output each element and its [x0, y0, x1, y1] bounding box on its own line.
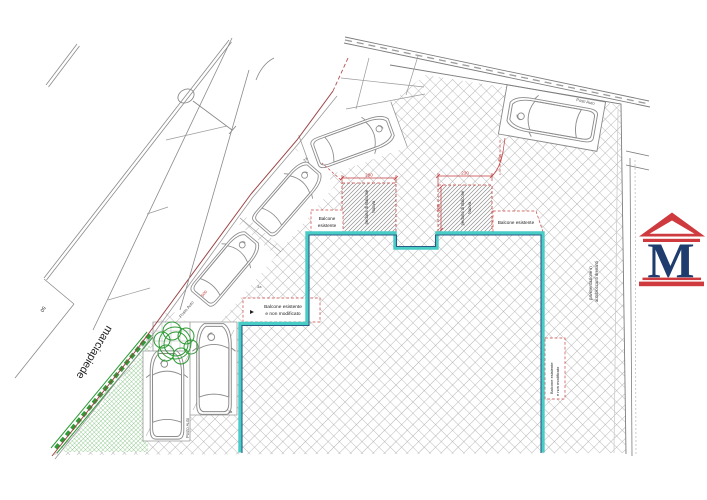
- svg-text:pedana di Balcone: pedana di Balcone: [364, 189, 369, 224]
- svg-text:3a: 3a: [257, 284, 262, 289]
- svg-text:Balcone esistente: Balcone esistente: [498, 220, 535, 225]
- svg-text:pedana di Balcone: pedana di Balcone: [460, 190, 465, 225]
- svg-text:e non modificato: e non modificato: [555, 366, 560, 396]
- svg-text:Balcone: Balcone: [319, 216, 336, 221]
- svg-text:Balcone esistente: Balcone esistente: [264, 304, 302, 310]
- svg-text:Balcone esistente: Balcone esistente: [549, 362, 554, 394]
- svg-text:e non modificato: e non modificato: [265, 311, 301, 317]
- svg-text:Nuova: Nuova: [467, 201, 472, 214]
- svg-text:290: 290: [365, 173, 373, 178]
- svg-text:160: 160: [436, 204, 441, 212]
- svg-text:Posto Auto: Posto Auto: [185, 417, 190, 438]
- svg-text:pavimentazione in: pavimentazione in: [588, 266, 593, 300]
- svg-text:esistente: esistente: [318, 223, 337, 228]
- svg-text:autobloccanti drenanti: autobloccanti drenanti: [594, 261, 599, 302]
- svg-text:230: 230: [461, 171, 469, 176]
- svg-text:Nuova: Nuova: [371, 200, 376, 213]
